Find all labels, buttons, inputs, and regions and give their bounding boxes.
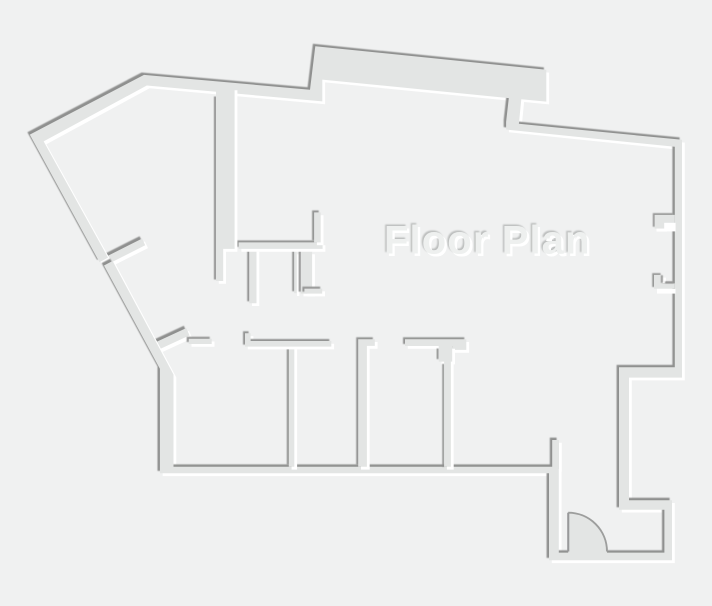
svg-text:Floor Plan: Floor Plan [384,219,591,263]
